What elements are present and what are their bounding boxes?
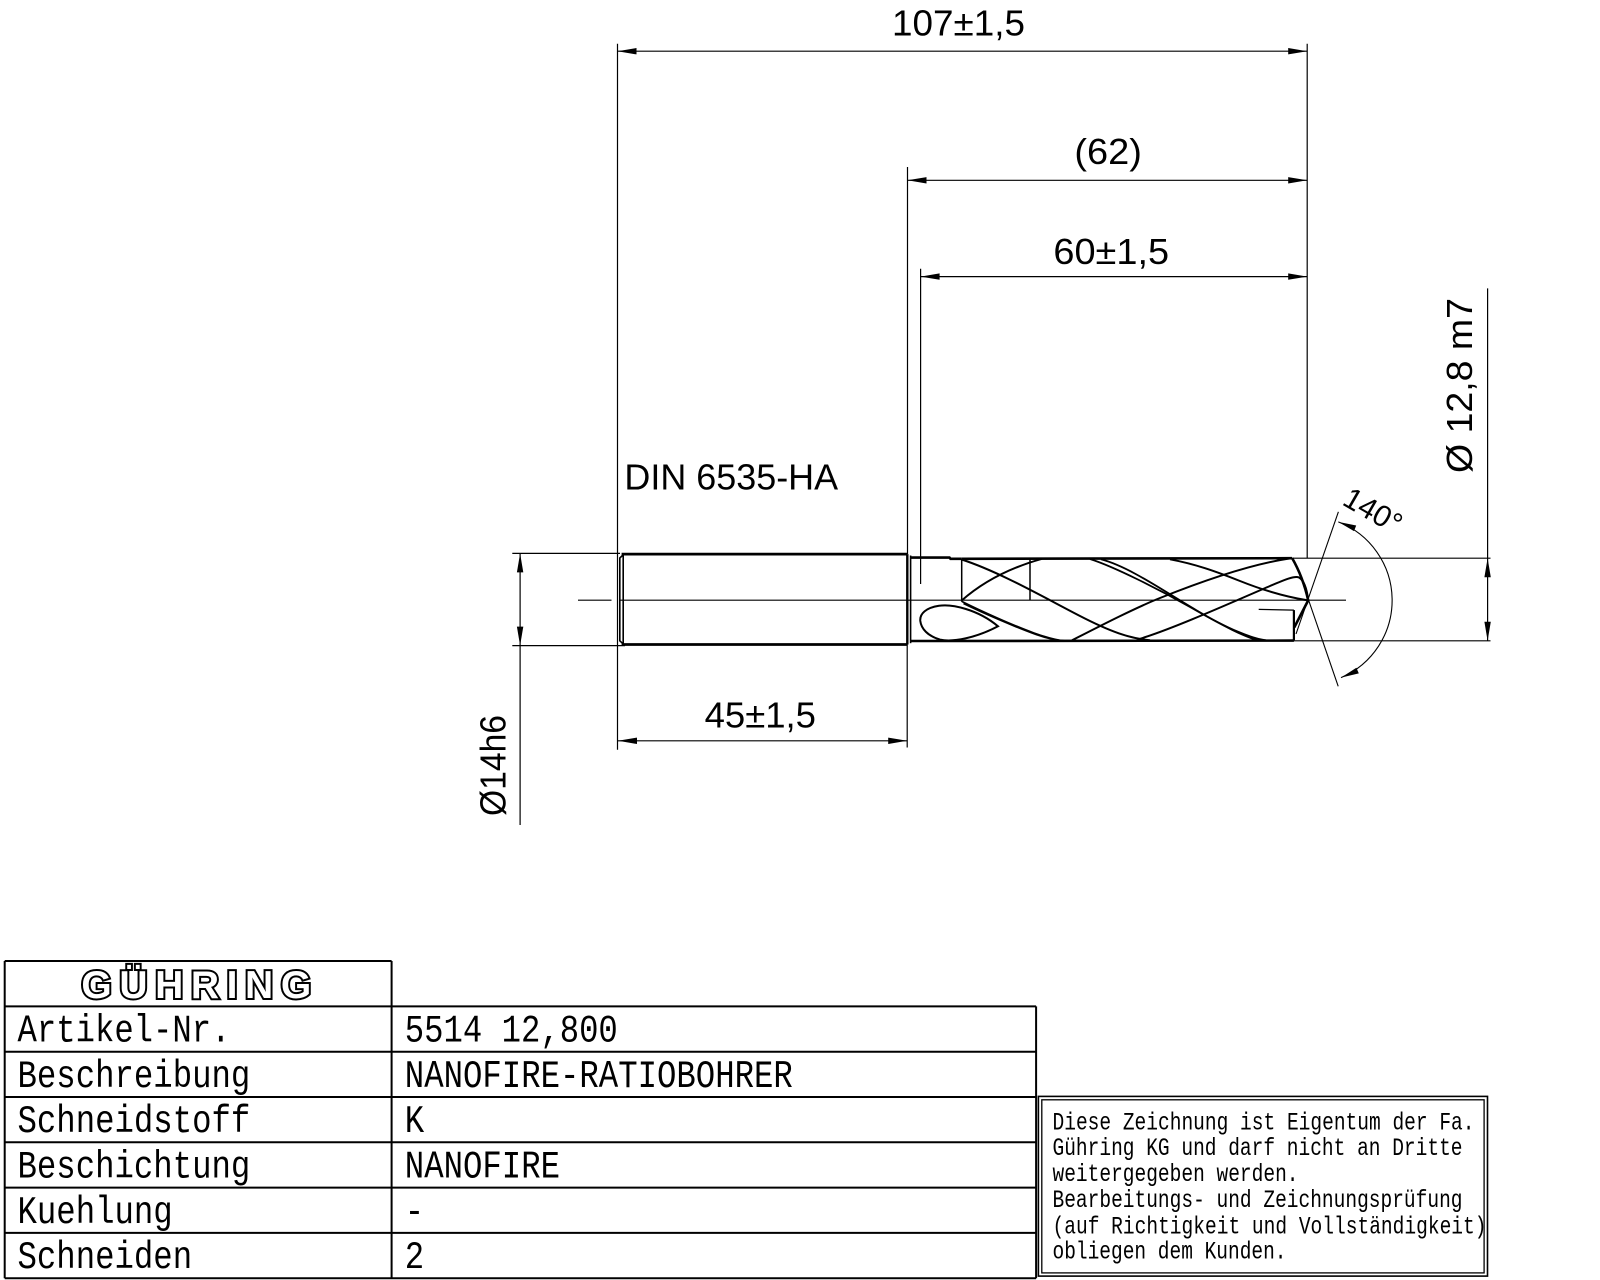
- svg-text:(62): (62): [1074, 131, 1142, 172]
- svg-text:Diese Zeichnung ist Eigentum d: Diese Zeichnung ist Eigentum der Fa.: [1053, 1108, 1475, 1137]
- svg-text:Beschichtung: Beschichtung: [18, 1146, 251, 1190]
- svg-text:Artikel-Nr.: Artikel-Nr.: [18, 1010, 231, 1054]
- svg-text:Schneidstoff: Schneidstoff: [18, 1100, 251, 1144]
- svg-text:Ø 12,8 m7: Ø 12,8 m7: [1439, 298, 1480, 473]
- svg-text:Kuehlung: Kuehlung: [18, 1191, 173, 1235]
- svg-text:45±1,5: 45±1,5: [705, 694, 816, 735]
- svg-text:NANOFIRE-RATIOBOHRER: NANOFIRE-RATIOBOHRER: [405, 1055, 793, 1099]
- svg-text:obliegen dem Kunden.: obliegen dem Kunden.: [1053, 1237, 1287, 1266]
- svg-text:weitergegeben werden.: weitergegeben werden.: [1053, 1160, 1299, 1189]
- svg-text:5514 12,800: 5514 12,800: [405, 1010, 618, 1054]
- svg-text:DIN 6535-HA: DIN 6535-HA: [624, 457, 838, 498]
- svg-text:Bearbeitungs- und Zeichnungspr: Bearbeitungs- und Zeichnungsprüfung: [1053, 1186, 1463, 1215]
- svg-text:GÜHRING: GÜHRING: [81, 964, 318, 1007]
- svg-text:K: K: [405, 1100, 425, 1144]
- svg-text:-: -: [405, 1191, 424, 1235]
- svg-text:Schneiden: Schneiden: [18, 1236, 193, 1280]
- svg-text:2: 2: [405, 1236, 424, 1280]
- svg-text:107±1,5: 107±1,5: [892, 3, 1025, 44]
- svg-text:60±1,5: 60±1,5: [1053, 231, 1169, 272]
- svg-text:Gühring KG und darf nicht an D: Gühring KG und darf nicht an Dritte: [1053, 1134, 1463, 1163]
- svg-text:Beschreibung: Beschreibung: [18, 1055, 251, 1099]
- svg-text:Ø14h6: Ø14h6: [473, 715, 514, 816]
- svg-text:NANOFIRE: NANOFIRE: [405, 1146, 560, 1190]
